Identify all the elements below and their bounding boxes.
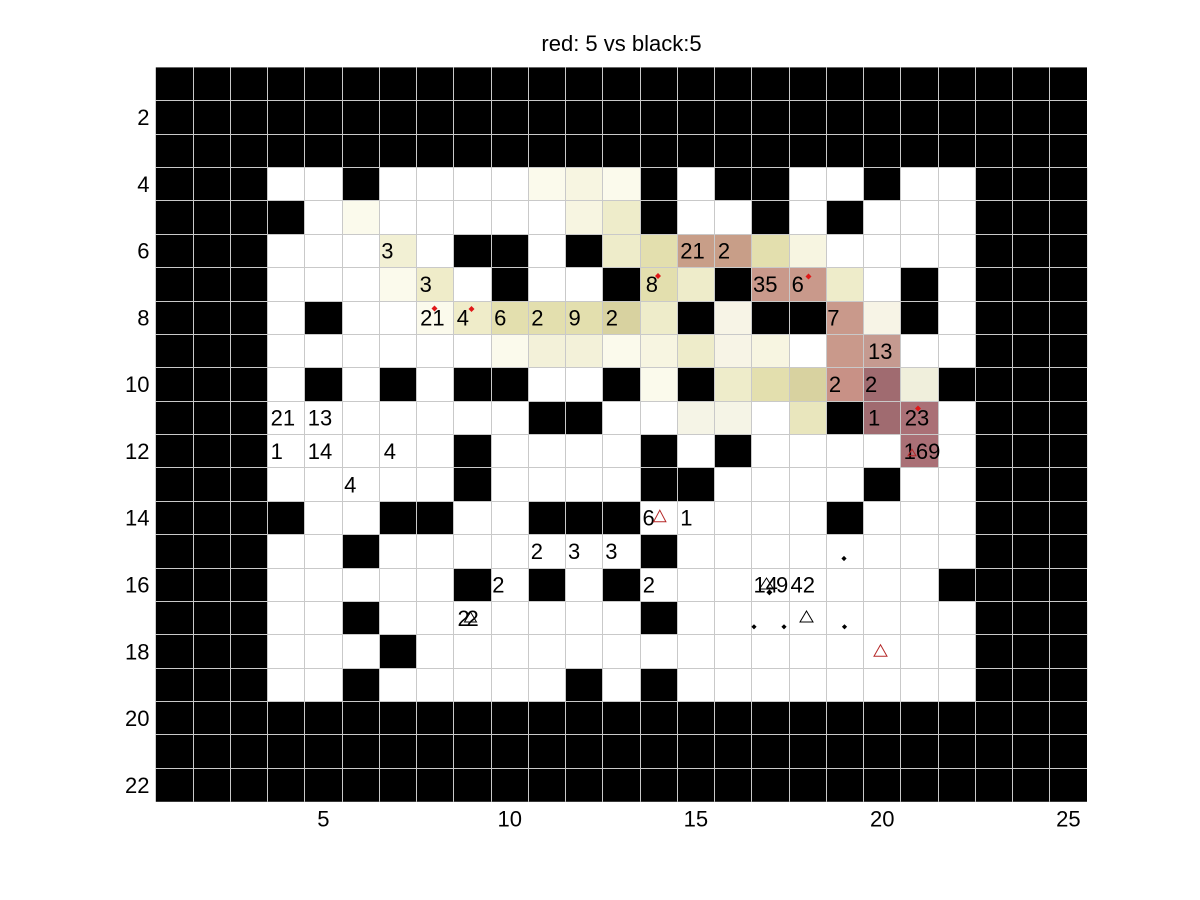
svg-text:1: 1 <box>868 406 880 431</box>
svg-text:7: 7 <box>827 305 839 330</box>
svg-text:1: 1 <box>680 506 692 531</box>
svg-text:2: 2 <box>531 305 543 330</box>
svg-text:2: 2 <box>829 372 841 397</box>
svg-text:3: 3 <box>420 272 432 297</box>
svg-text:9: 9 <box>569 305 581 330</box>
svg-text:14: 14 <box>754 573 778 598</box>
svg-text:8: 8 <box>137 305 149 330</box>
svg-text:3: 3 <box>381 239 393 264</box>
svg-text:16: 16 <box>125 573 149 598</box>
svg-text:35: 35 <box>753 272 777 297</box>
svg-text:9: 9 <box>776 573 788 598</box>
svg-text:25: 25 <box>1056 806 1080 831</box>
svg-text:red: 5 vs black:5: red: 5 vs black:5 <box>541 31 701 56</box>
svg-text:5: 5 <box>317 806 329 831</box>
svg-text:10: 10 <box>125 372 149 397</box>
svg-text:169: 169 <box>904 439 941 464</box>
svg-text:6: 6 <box>137 239 149 264</box>
svg-text:4: 4 <box>384 439 396 464</box>
svg-text:2: 2 <box>606 305 618 330</box>
svg-text:13: 13 <box>868 339 892 364</box>
svg-text:6: 6 <box>494 305 506 330</box>
svg-text:13: 13 <box>308 406 332 431</box>
svg-text:2: 2 <box>643 573 655 598</box>
svg-text:3: 3 <box>605 539 617 564</box>
svg-text:12: 12 <box>125 439 149 464</box>
svg-text:21: 21 <box>271 406 295 431</box>
svg-text:4: 4 <box>137 172 149 197</box>
svg-text:6: 6 <box>643 506 655 531</box>
svg-text:4: 4 <box>457 305 469 330</box>
svg-text:6: 6 <box>792 272 804 297</box>
svg-text:20: 20 <box>870 806 894 831</box>
svg-text:22: 22 <box>125 773 149 798</box>
svg-text:18: 18 <box>125 639 149 664</box>
svg-text:2: 2 <box>492 573 504 598</box>
svg-text:4: 4 <box>344 472 356 497</box>
svg-text:2: 2 <box>137 105 149 130</box>
svg-text:2: 2 <box>718 239 730 264</box>
svg-text:15: 15 <box>684 806 708 831</box>
svg-text:10: 10 <box>497 806 521 831</box>
svg-text:2: 2 <box>467 606 479 631</box>
svg-text:20: 20 <box>125 706 149 731</box>
svg-text:1: 1 <box>271 439 283 464</box>
svg-text:2: 2 <box>865 372 877 397</box>
svg-text:3: 3 <box>568 539 580 564</box>
svg-text:42: 42 <box>791 573 815 598</box>
svg-text:21: 21 <box>680 239 704 264</box>
svg-text:2: 2 <box>531 539 543 564</box>
svg-text:14: 14 <box>308 439 332 464</box>
svg-text:14: 14 <box>125 506 149 531</box>
